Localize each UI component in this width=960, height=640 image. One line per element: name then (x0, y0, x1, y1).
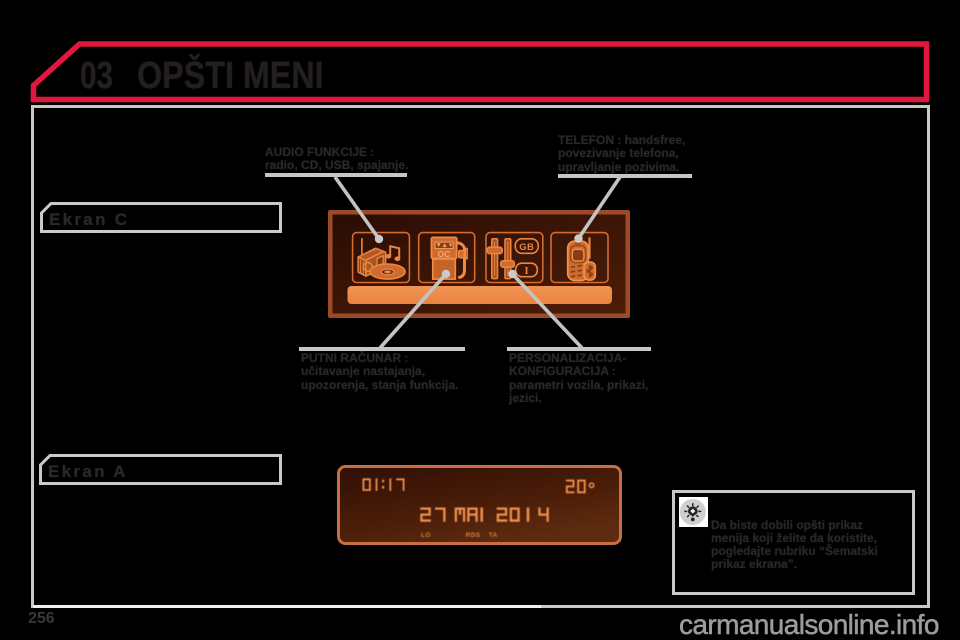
svg-text:RDS: RDS (466, 532, 481, 539)
svg-text:TA: TA (489, 532, 498, 539)
svg-text:LO: LO (421, 532, 431, 539)
